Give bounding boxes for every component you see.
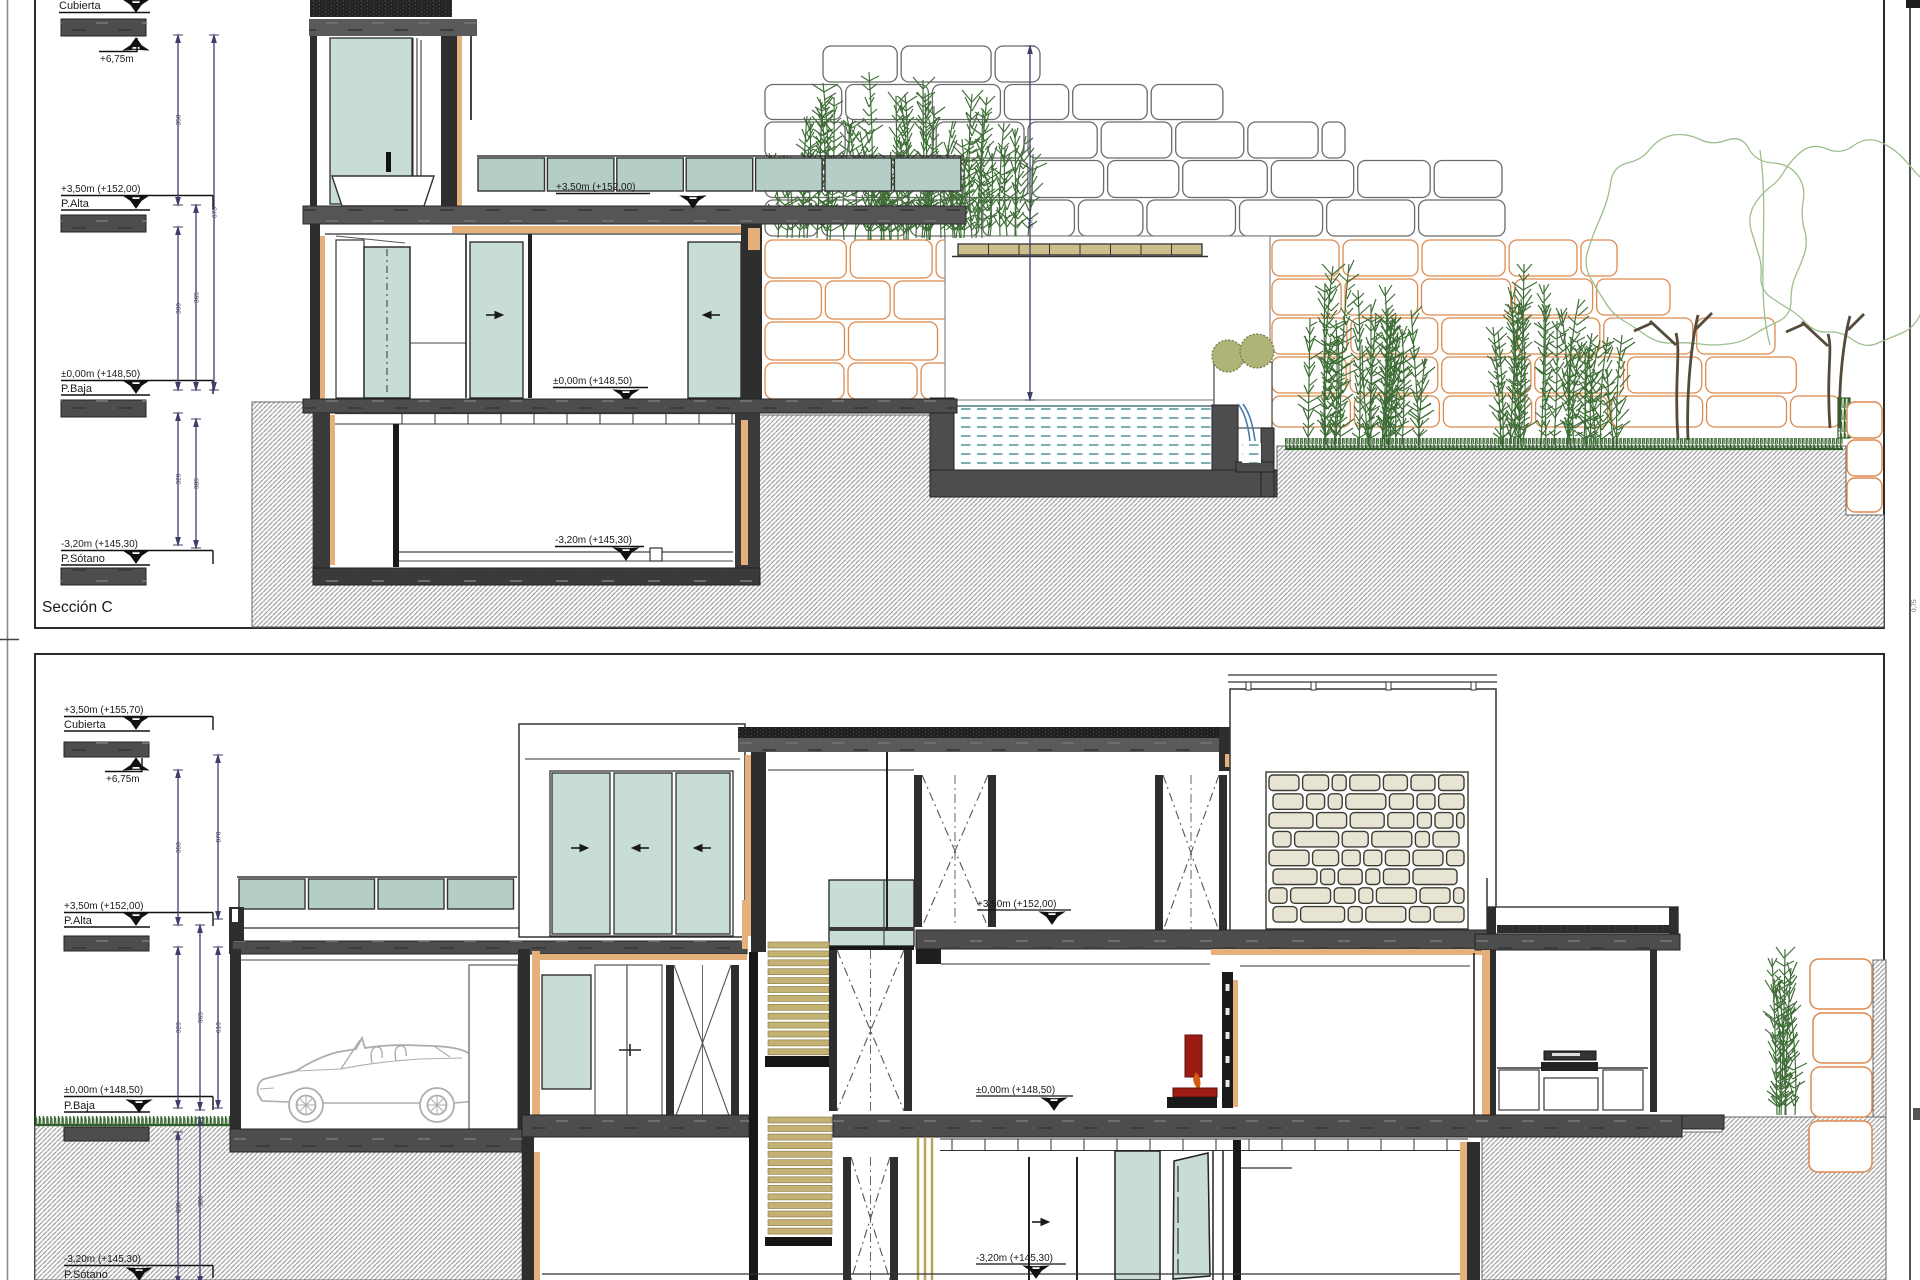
svg-text:+3,50m (+155,70): +3,50m (+155,70) xyxy=(64,705,144,716)
svg-text:±0,00m (+148,50): ±0,00m (+148,50) xyxy=(61,369,140,380)
svg-text:P.Alta: P.Alta xyxy=(61,198,90,210)
svg-text:870: 870 xyxy=(216,831,223,842)
svg-text:+3,50m (+152,00): +3,50m (+152,00) xyxy=(977,899,1057,910)
svg-text:0,75: 0,75 xyxy=(1911,599,1918,612)
svg-text:610: 610 xyxy=(216,1022,223,1033)
svg-text:385: 385 xyxy=(194,478,201,489)
svg-text:Sección C: Sección C xyxy=(42,599,113,616)
svg-text:350: 350 xyxy=(176,842,183,853)
svg-text:+3,50m (+152,00): +3,50m (+152,00) xyxy=(64,901,144,912)
svg-text:-3,20m (+145,30): -3,20m (+145,30) xyxy=(61,539,138,550)
svg-text:P.Sótano: P.Sótano xyxy=(64,1269,108,1280)
svg-text:320: 320 xyxy=(176,1022,183,1033)
svg-text:350: 350 xyxy=(176,114,183,125)
svg-text:+3,50m (+152,00): +3,50m (+152,00) xyxy=(61,184,141,195)
svg-text:365: 365 xyxy=(194,292,201,303)
svg-text:300: 300 xyxy=(1028,217,1035,228)
svg-text:+6,75m: +6,75m xyxy=(106,774,140,785)
svg-text:Cubierta: Cubierta xyxy=(59,0,101,12)
svg-text:-3,20m (+145,30): -3,20m (+145,30) xyxy=(976,1253,1053,1264)
svg-text:320: 320 xyxy=(176,473,183,484)
svg-text:P.Baja: P.Baja xyxy=(64,1100,96,1112)
svg-text:+6,75m: +6,75m xyxy=(100,54,134,65)
svg-text:±0,00m (+148,50): ±0,00m (+148,50) xyxy=(64,1085,143,1096)
svg-text:385: 385 xyxy=(198,1195,205,1206)
svg-text:P.Baja: P.Baja xyxy=(61,383,93,395)
svg-text:600: 600 xyxy=(176,1202,183,1213)
svg-text:300: 300 xyxy=(176,303,183,314)
svg-text:±0,00m (+148,50): ±0,00m (+148,50) xyxy=(553,376,632,387)
svg-text:-3,20m (+145,30): -3,20m (+145,30) xyxy=(555,535,632,546)
svg-text:673: 673 xyxy=(212,207,219,218)
svg-text:+3,50m (+152,00): +3,50m (+152,00) xyxy=(556,182,636,193)
svg-text:P.Sótano: P.Sótano xyxy=(61,553,105,565)
svg-text:365: 365 xyxy=(198,1012,205,1023)
svg-text:Cubierta: Cubierta xyxy=(64,719,106,731)
svg-text:P.Alta: P.Alta xyxy=(64,915,93,927)
svg-text:-3,20m (+145,30): -3,20m (+145,30) xyxy=(64,1254,141,1265)
svg-text:±0,00m (+148,50): ±0,00m (+148,50) xyxy=(976,1085,1055,1096)
